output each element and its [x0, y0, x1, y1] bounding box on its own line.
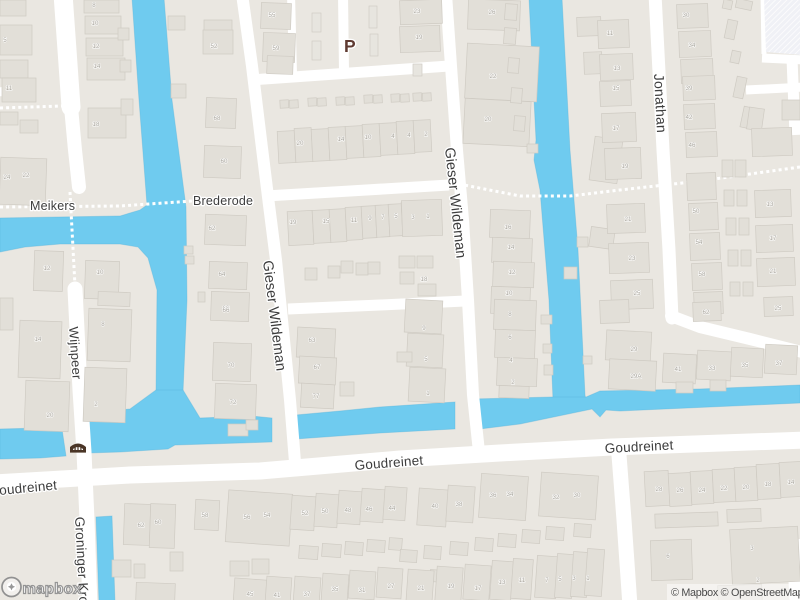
svg-text:6: 6 [666, 553, 670, 560]
svg-text:19: 19 [290, 219, 297, 226]
svg-text:72: 72 [230, 399, 237, 406]
svg-text:21: 21 [770, 268, 777, 275]
svg-text:21: 21 [625, 216, 632, 223]
svg-text:3: 3 [572, 575, 576, 582]
svg-text:13: 13 [614, 65, 621, 72]
svg-text:13: 13 [499, 579, 506, 586]
svg-text:50: 50 [322, 508, 329, 515]
svg-text:30: 30 [683, 12, 690, 19]
svg-text:P: P [344, 36, 356, 56]
svg-text:29: 29 [631, 346, 638, 353]
svg-text:3: 3 [411, 214, 415, 221]
svg-text:4: 4 [407, 132, 411, 139]
svg-text:11: 11 [6, 85, 13, 92]
svg-text:Brederode: Brederode [193, 194, 253, 208]
svg-text:5: 5 [3, 37, 7, 44]
svg-text:25: 25 [775, 305, 782, 312]
svg-text:23: 23 [629, 255, 636, 262]
svg-text:11: 11 [351, 217, 358, 224]
svg-text:58: 58 [699, 271, 706, 278]
svg-text:14: 14 [35, 336, 42, 343]
svg-text:46: 46 [689, 142, 696, 149]
svg-text:26: 26 [489, 9, 496, 16]
svg-text:55: 55 [269, 12, 276, 19]
svg-text:54: 54 [264, 512, 271, 519]
svg-text:5: 5 [424, 356, 428, 363]
svg-text:15: 15 [613, 85, 620, 92]
svg-text:2: 2 [94, 401, 98, 408]
svg-text:34: 34 [507, 491, 514, 498]
svg-text:48: 48 [345, 507, 352, 514]
svg-text:64: 64 [219, 271, 226, 278]
svg-text:46: 46 [366, 506, 373, 513]
svg-text:32: 32 [553, 494, 560, 501]
svg-text:21: 21 [418, 585, 425, 592]
svg-text:19: 19 [622, 163, 629, 170]
svg-text:41: 41 [274, 592, 281, 599]
svg-text:37: 37 [776, 360, 783, 367]
svg-text:10: 10 [506, 290, 513, 297]
svg-text:5: 5 [558, 576, 562, 583]
svg-text:8: 8 [508, 311, 512, 318]
svg-text:18: 18 [421, 276, 428, 283]
svg-text:18: 18 [93, 121, 100, 128]
svg-text:10: 10 [97, 269, 104, 276]
svg-text:63: 63 [309, 337, 316, 344]
svg-text:7: 7 [381, 214, 385, 221]
svg-text:10: 10 [365, 134, 372, 141]
svg-text:mapbox: mapbox [23, 581, 83, 598]
svg-text:4: 4 [391, 133, 395, 140]
svg-text:31: 31 [359, 587, 366, 594]
svg-text:1: 1 [586, 575, 590, 582]
svg-text:7: 7 [545, 577, 549, 584]
svg-text:62: 62 [209, 225, 216, 232]
svg-text:4: 4 [509, 357, 513, 364]
svg-text:Jonathan: Jonathan [651, 73, 670, 133]
svg-text:16: 16 [505, 224, 512, 231]
svg-text:22: 22 [721, 485, 728, 492]
svg-text:58: 58 [202, 512, 209, 519]
svg-text:9: 9 [368, 215, 372, 222]
svg-text:20: 20 [297, 140, 304, 147]
svg-text:20: 20 [485, 116, 492, 123]
svg-text:41: 41 [675, 366, 682, 373]
svg-text:67: 67 [314, 364, 321, 371]
svg-text:13: 13 [767, 201, 774, 208]
svg-text:1: 1 [426, 213, 430, 220]
svg-text:11: 11 [519, 577, 526, 584]
svg-text:37: 37 [304, 591, 311, 598]
svg-text:© Mapbox © OpenStreetMap: © Mapbox © OpenStreetMap [671, 587, 800, 599]
svg-text:14: 14 [788, 479, 795, 486]
svg-text:54: 54 [696, 239, 703, 246]
svg-text:40: 40 [432, 503, 439, 510]
svg-text:8: 8 [92, 2, 96, 9]
svg-text:56: 56 [244, 514, 251, 521]
svg-text:59: 59 [273, 45, 280, 52]
svg-text:5: 5 [394, 213, 398, 220]
svg-text:Meikers: Meikers [30, 199, 75, 213]
svg-text:50: 50 [693, 208, 700, 215]
svg-text:6: 6 [508, 334, 512, 341]
svg-text:62: 62 [703, 309, 710, 316]
svg-text:3: 3 [750, 545, 754, 552]
svg-text:39: 39 [686, 85, 693, 92]
svg-text:20: 20 [743, 484, 750, 491]
svg-text:68: 68 [214, 115, 221, 122]
svg-text:19: 19 [416, 34, 423, 41]
svg-text:12: 12 [93, 43, 100, 50]
svg-text:23: 23 [414, 8, 421, 15]
svg-text:52: 52 [302, 510, 309, 517]
svg-text:19: 19 [448, 583, 455, 590]
svg-text:22: 22 [490, 73, 497, 80]
svg-text:60: 60 [155, 519, 162, 526]
svg-text:2: 2 [424, 131, 428, 138]
svg-text:34: 34 [689, 42, 696, 49]
svg-text:20: 20 [47, 412, 54, 419]
svg-text:77: 77 [313, 393, 320, 400]
svg-text:22: 22 [23, 172, 30, 179]
svg-text:2: 2 [756, 577, 760, 584]
svg-text:35: 35 [332, 586, 339, 593]
svg-text:14: 14 [508, 244, 515, 251]
svg-text:15: 15 [323, 218, 330, 225]
svg-text:18: 18 [765, 481, 772, 488]
svg-text:70: 70 [228, 362, 235, 369]
svg-text:35: 35 [742, 362, 749, 369]
svg-text:9: 9 [422, 325, 426, 332]
svg-text:24: 24 [4, 174, 11, 181]
svg-text:60: 60 [221, 158, 228, 165]
svg-text:26: 26 [677, 487, 684, 494]
svg-text:33: 33 [709, 365, 716, 372]
svg-text:2: 2 [511, 379, 515, 386]
svg-text:62: 62 [138, 522, 145, 529]
svg-text:27: 27 [388, 583, 395, 590]
svg-text:14: 14 [94, 63, 101, 70]
svg-text:30: 30 [574, 492, 581, 499]
svg-text:38: 38 [456, 501, 463, 508]
svg-text:10: 10 [92, 20, 99, 27]
svg-text:12: 12 [44, 265, 51, 272]
svg-text:14: 14 [338, 136, 345, 143]
svg-text:17: 17 [770, 235, 777, 242]
svg-text:52: 52 [211, 43, 218, 50]
svg-text:29A: 29A [630, 373, 642, 380]
svg-text:11: 11 [607, 30, 614, 37]
svg-text:25: 25 [634, 290, 641, 297]
svg-text:24: 24 [699, 487, 706, 494]
svg-text:28: 28 [656, 486, 663, 493]
svg-text:36: 36 [490, 492, 497, 499]
svg-text:1: 1 [426, 390, 430, 397]
svg-text:42: 42 [686, 114, 693, 121]
svg-text:17: 17 [475, 585, 482, 592]
svg-text:12: 12 [509, 269, 516, 276]
svg-text:44: 44 [389, 505, 396, 512]
svg-text:66: 66 [223, 307, 230, 314]
svg-text:8: 8 [101, 321, 105, 328]
svg-text:45: 45 [247, 591, 254, 598]
svg-text:17: 17 [613, 125, 620, 132]
